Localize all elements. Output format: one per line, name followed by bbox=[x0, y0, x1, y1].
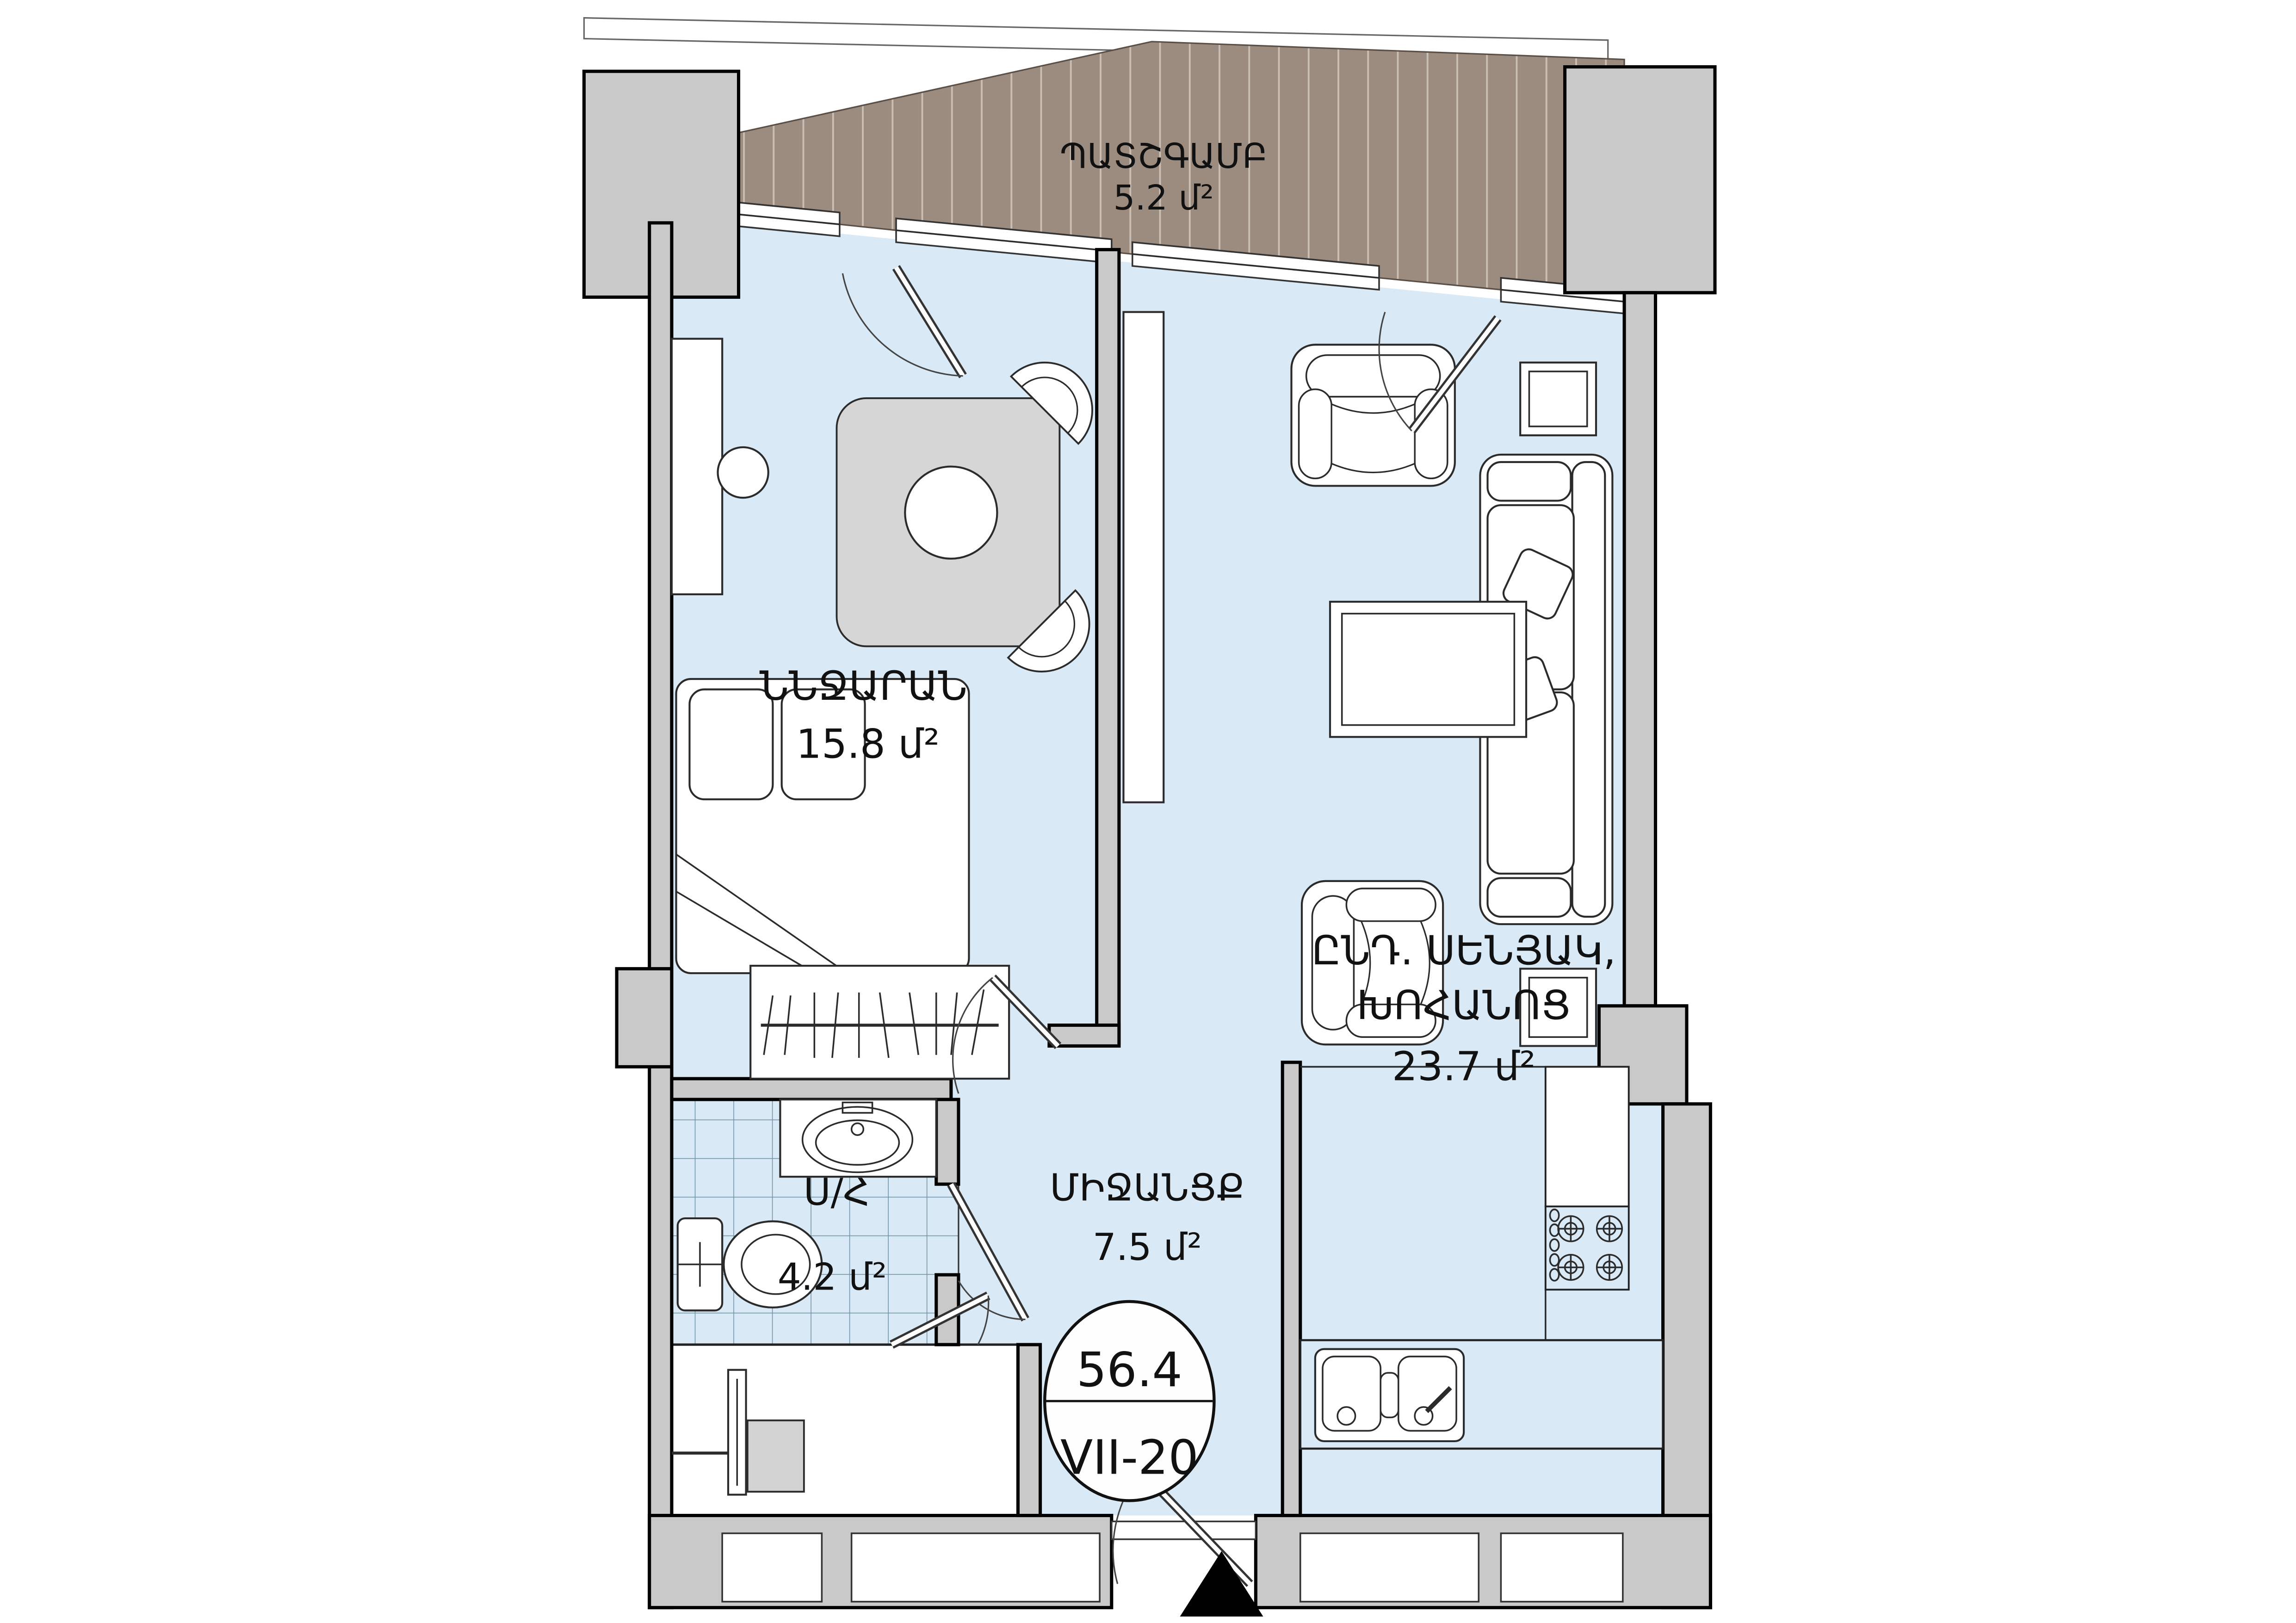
balcony-area: 5.2 մ² bbox=[1114, 178, 1214, 218]
bedroom-area: 15.8 մ² bbox=[796, 721, 940, 767]
hallway-area: 7.5 մ² bbox=[1093, 1225, 1202, 1269]
pillar-top-right bbox=[1565, 67, 1715, 293]
bathroom-name: Ս/Հ bbox=[804, 1170, 870, 1214]
shower-room-floor bbox=[672, 1345, 1018, 1515]
sofa-back bbox=[1572, 462, 1605, 917]
window-bottom-3 bbox=[1300, 1533, 1479, 1602]
coffee-table bbox=[1330, 602, 1526, 737]
kitchen-counter-top bbox=[1546, 1067, 1629, 1206]
sink-icon bbox=[1315, 1349, 1464, 1441]
armchair-top bbox=[1291, 345, 1454, 486]
living-name-1: ԸՆԴ. ՍԵՆՅԱԿ, bbox=[1312, 927, 1616, 974]
entrance-threshold bbox=[1112, 1521, 1256, 1539]
unit-total-area: 56.4 bbox=[1077, 1343, 1182, 1398]
side-table-top bbox=[1520, 363, 1596, 435]
wall-right-upper bbox=[1624, 293, 1655, 1006]
hallway-name: ՄԻՋԱՆՑՔ bbox=[1050, 1166, 1244, 1210]
window-bottom-4 bbox=[1501, 1533, 1622, 1602]
floor-plan-page: ՊԱՏՇԳԱՄԲ 5.2 մ² ՆՆՋԱՐԱՆ 15.8 մ² ԸՆԴ. ՍԵՆ… bbox=[0, 0, 2296, 1623]
sofa-arm-bottom bbox=[1488, 878, 1571, 917]
vanity-sink-icon bbox=[780, 1099, 936, 1177]
bedroom-name: ՆՆՋԱՐԱՆ bbox=[760, 663, 967, 710]
wall-bathroom-right-upper bbox=[936, 1099, 959, 1184]
stove bbox=[1546, 1206, 1629, 1290]
unit-badge: 56.4 VII-20 bbox=[1045, 1302, 1214, 1500]
table-top-round bbox=[905, 467, 997, 559]
desk bbox=[672, 339, 722, 594]
wall-hall-kitchen bbox=[1282, 1062, 1300, 1516]
wall-left bbox=[650, 223, 672, 1608]
balcony-name: ՊԱՏՇԳԱՄԲ bbox=[1060, 136, 1268, 176]
wall-shower-right bbox=[1018, 1345, 1040, 1515]
floor-plan-svg: ՊԱՏՇԳԱՄԲ 5.2 մ² ՆՆՋԱՐԱՆ 15.8 մ² ԸՆԴ. ՍԵՆ… bbox=[0, 0, 2296, 1623]
tv-cabinet bbox=[1123, 312, 1163, 802]
unit-code: VII-20 bbox=[1060, 1431, 1199, 1486]
pillar-left-mid bbox=[617, 969, 672, 1067]
wall-bedroom-bathroom bbox=[672, 1079, 951, 1099]
wardrobe bbox=[750, 966, 1009, 1079]
window-bottom-1 bbox=[722, 1533, 822, 1602]
desk-chair bbox=[718, 447, 768, 498]
sofa-arm-top bbox=[1488, 462, 1571, 501]
window-bottom-2 bbox=[852, 1533, 1100, 1602]
living-name-2: ԽՈՀԱՆՈՑ bbox=[1357, 982, 1571, 1029]
wall-bedroom-living bbox=[1097, 250, 1119, 1043]
living-area: 23.7 մ² bbox=[1392, 1043, 1535, 1090]
bathroom-area: 4.2 մ² bbox=[778, 1255, 887, 1298]
